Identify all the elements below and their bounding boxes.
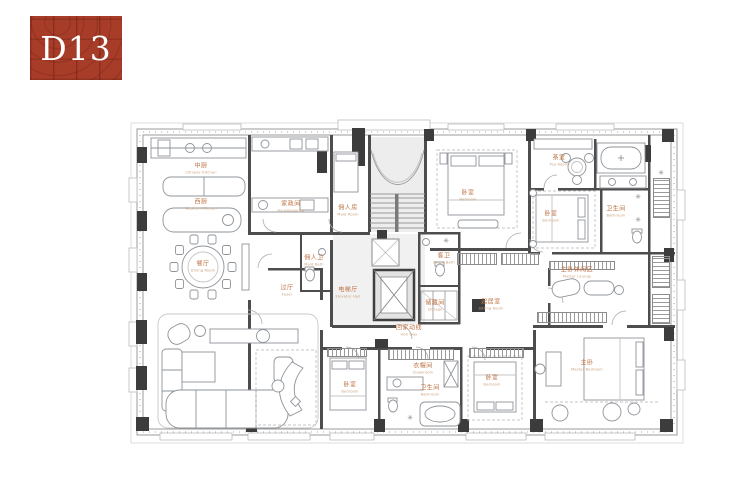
wardrobe-hatch <box>327 348 367 357</box>
bathtub-ne <box>597 143 645 173</box>
tea-room-furniture <box>534 139 594 185</box>
bedroom-southwest-furniture <box>330 358 366 410</box>
wardrobe-hatch <box>388 349 454 360</box>
shower-icon: ✳ <box>635 193 641 201</box>
wardrobe-hatch <box>501 253 539 265</box>
wardrobe-hatch <box>537 312 607 323</box>
shower-icon: ✳ <box>635 216 641 224</box>
wardrobe-hatch <box>652 256 670 288</box>
wardrobe-hatch <box>549 261 615 270</box>
master-lounge-furniture <box>551 277 624 298</box>
shower-icon: ✳ <box>658 169 664 177</box>
wardrobe-hatch <box>457 253 497 265</box>
wardrobe-hatch <box>652 294 670 324</box>
wardrobe-hatch <box>653 178 670 218</box>
master-bedroom-furniture <box>535 338 658 421</box>
bedroom-south-furniture <box>468 356 522 420</box>
shower-icon: ✳ <box>443 237 449 245</box>
bedroom-north-furniture <box>437 150 517 228</box>
housekeeping-counters <box>252 137 328 212</box>
bedroom-east-furniture <box>530 190 596 249</box>
page: D13 <box>0 0 750 500</box>
dining-table <box>170 235 236 299</box>
guest-bath-fixtures <box>423 239 445 277</box>
bath-south-fixtures <box>387 361 460 426</box>
floor-plan: ✳ ✳ ✳ ✳ ✳ 中厨 Chinese Kitchen 西厨 Western … <box>0 0 750 500</box>
floor-plan-drawing: ✳ ✳ ✳ ✳ ✳ <box>0 0 750 500</box>
shower-icon: ✳ <box>407 414 413 422</box>
wardrobe-hatch <box>469 348 524 358</box>
bath-east-fixtures <box>600 176 646 243</box>
storage-shelves <box>421 291 457 320</box>
